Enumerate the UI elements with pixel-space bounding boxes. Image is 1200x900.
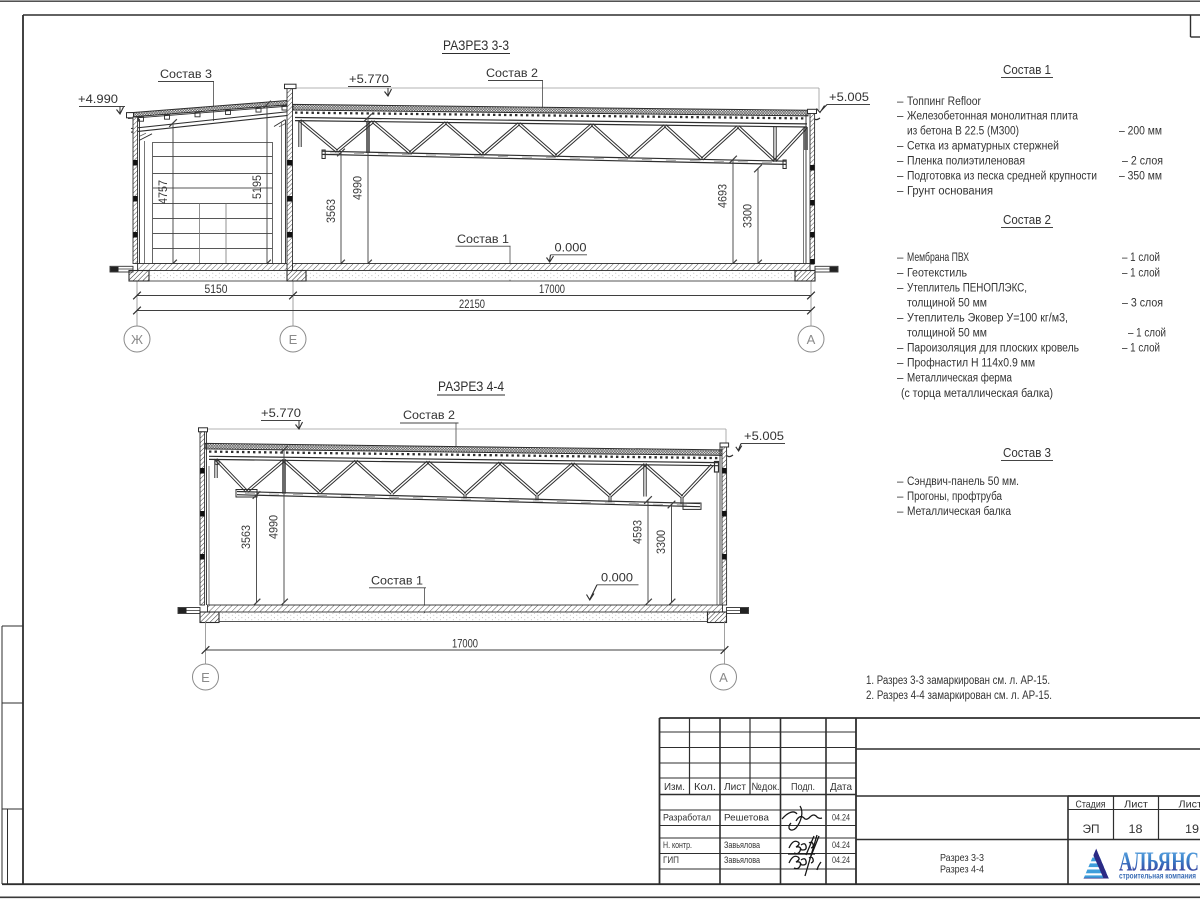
svg-text:– 200 мм: – 200 мм [1119,126,1162,138]
svg-text:Состав 3: Состав 3 [1003,445,1051,460]
svg-text:Сэндвич-панель 50 мм.: Сэндвич-панель 50 мм. [907,476,1019,488]
svg-text:– 3 слоя: – 3 слоя [1122,298,1163,310]
svg-text:–: – [897,476,904,488]
svg-text:Утеплитель Эковер У=100 кг/м3,: Утеплитель Эковер У=100 кг/м3, [907,313,1068,325]
svg-text:Топпинг Refloor: Топпинг Refloor [907,96,981,108]
svg-text:Металлическая балка: Металлическая балка [907,506,1012,518]
svg-text:Лист: Лист [1124,799,1148,811]
svg-text:+5.005: +5.005 [829,90,869,104]
svg-text:–: – [897,506,904,518]
svg-text:Разрез 4-4: Разрез 4-4 [940,864,984,876]
svg-text:–: – [897,111,904,123]
svg-text:–: – [897,156,904,168]
svg-text:04.24: 04.24 [832,840,850,851]
svg-text:3563: 3563 [241,525,253,549]
svg-text:Подп.: Подп. [791,781,815,793]
svg-text:Листов: Листов [1179,799,1200,811]
svg-text:3300: 3300 [743,204,755,228]
svg-text:–: – [897,313,904,325]
svg-text:Ж: Ж [131,332,143,347]
svg-text:Сетка из арматурных стержней: Сетка из арматурных стержней [907,141,1059,153]
svg-text:04.24: 04.24 [832,813,850,824]
svg-text:–: – [897,491,904,503]
svg-text:строительная компания: строительная компания [1119,871,1196,880]
svg-text:толщиной 50 мм: толщиной 50 мм [907,298,987,310]
svg-text:5150: 5150 [205,282,228,296]
svg-text:–: – [897,283,904,295]
svg-text:18: 18 [1129,824,1143,836]
svg-text:Решетова: Решетова [724,813,770,824]
svg-text:Пленка полиэтиленовая: Пленка полиэтиленовая [907,156,1025,168]
svg-text:РАЗРЕЗ 4-4: РАЗРЕЗ 4-4 [438,379,504,394]
svg-text:Прогоны, профтруба: Прогоны, профтруба [907,491,1003,503]
svg-text:–: – [897,373,904,385]
svg-text:+5.770: +5.770 [261,406,301,420]
svg-text:РАЗРЕЗ 3-3: РАЗРЕЗ 3-3 [443,38,509,53]
svg-text:Завьялова: Завьялова [724,855,761,866]
svg-text:Состав 3: Состав 3 [160,69,212,81]
svg-text:Металлическая ферма: Металлическая ферма [907,373,1013,385]
svg-text:Подготовка из песка средней кр: Подготовка из песка средней крупности [907,171,1097,183]
svg-text:– 350 мм: – 350 мм [1119,171,1162,183]
svg-text:ЭП: ЭП [1083,824,1100,836]
svg-text:–: – [897,358,904,370]
svg-text:Состав 1: Состав 1 [371,576,423,588]
svg-text:22150: 22150 [459,297,485,311]
svg-text:+5.005: +5.005 [744,429,784,443]
svg-text:04.24: 04.24 [832,855,850,866]
svg-text:3563: 3563 [326,199,338,223]
svg-text:А: А [807,332,816,347]
svg-text:4693: 4693 [718,184,730,208]
svg-text:Мембрана ПВХ: Мембрана ПВХ [907,252,969,264]
svg-text:–: – [897,96,904,108]
svg-text:4990: 4990 [353,176,365,200]
svg-text:Профнастил Н 114х0.9 мм: Профнастил Н 114х0.9 мм [907,358,1035,370]
svg-text:0.000: 0.000 [555,241,587,255]
svg-text:толщиной 50 мм: толщиной 50 мм [907,328,987,340]
svg-text:Разрез 3-3: Разрез 3-3 [940,852,984,864]
svg-text:Стадия: Стадия [1076,799,1106,811]
svg-text:Состав 2: Состав 2 [486,68,538,80]
svg-text:(с торца металлическая балка): (с торца металлическая балка) [901,388,1053,400]
svg-text:Состав 1: Состав 1 [1003,62,1051,77]
svg-text:0.000: 0.000 [601,571,633,585]
svg-text:4757: 4757 [158,180,170,204]
svg-text:4593: 4593 [633,520,645,544]
svg-text:Дата: Дата [830,781,852,793]
svg-text:Состав 1: Состав 1 [457,234,509,246]
svg-text:Железобетонная монолитная пли: Железобетонная монолитная плита [907,111,1079,123]
svg-text:– 1 слой: – 1 слой [1122,343,1160,355]
svg-text:Разработал: Разработал [663,813,711,824]
svg-text:–: – [897,171,904,183]
svg-text:1. Разрез 3-3 замаркирован см.: 1. Разрез 3-3 замаркирован см. л. АР-15. [866,675,1050,687]
svg-text:Состав 2: Состав 2 [1003,212,1051,227]
svg-text:Н. контр.: Н. контр. [663,840,692,851]
svg-text:–: – [897,343,904,355]
svg-text:– 1 слой: – 1 слой [1122,252,1160,264]
svg-text:17000: 17000 [539,282,565,296]
svg-text:№док.: №док. [752,781,780,793]
svg-text:–: – [897,252,904,264]
svg-text:Е: Е [201,670,210,685]
svg-text:+4.990: +4.990 [78,92,118,106]
svg-text:– 1 слой: – 1 слой [1128,328,1166,340]
svg-text:–: – [897,268,904,280]
svg-text:Геотекстиль: Геотекстиль [907,268,967,280]
svg-text:17000: 17000 [452,637,478,651]
svg-text:4990: 4990 [269,515,281,539]
svg-text:– 2 слоя: – 2 слоя [1122,156,1163,168]
svg-text:Завьялова: Завьялова [724,840,761,851]
svg-text:2. Разрез 4-4 замаркирован см.: 2. Разрез 4-4 замаркирован см. л. АР-15. [866,690,1052,702]
svg-text:Лист: Лист [724,781,746,793]
svg-text:Утеплитель ПЕНОПЛЭКС,: Утеплитель ПЕНОПЛЭКС, [907,283,1027,295]
svg-text:–: – [897,186,904,198]
svg-text:А: А [719,670,728,685]
svg-text:Изм.: Изм. [664,781,685,793]
svg-text:5195: 5195 [252,175,264,199]
svg-text:19: 19 [1185,824,1199,836]
svg-text:Грунт основания: Грунт основания [907,186,993,198]
svg-text:Состав 2: Состав 2 [403,410,455,422]
svg-text:+5.770: +5.770 [349,72,389,86]
svg-text:–: – [897,141,904,153]
svg-text:– 1 слой: – 1 слой [1122,268,1160,280]
svg-text:Пароизоляция для плоских крове: Пароизоляция для плоских кровель [907,343,1079,355]
svg-text:ГИП: ГИП [663,855,679,866]
svg-text:из бетона В 22.5 (М300): из бетона В 22.5 (М300) [907,126,1019,138]
svg-text:3300: 3300 [656,530,668,554]
svg-text:Е: Е [289,332,298,347]
svg-text:Кол.: Кол. [694,781,716,793]
